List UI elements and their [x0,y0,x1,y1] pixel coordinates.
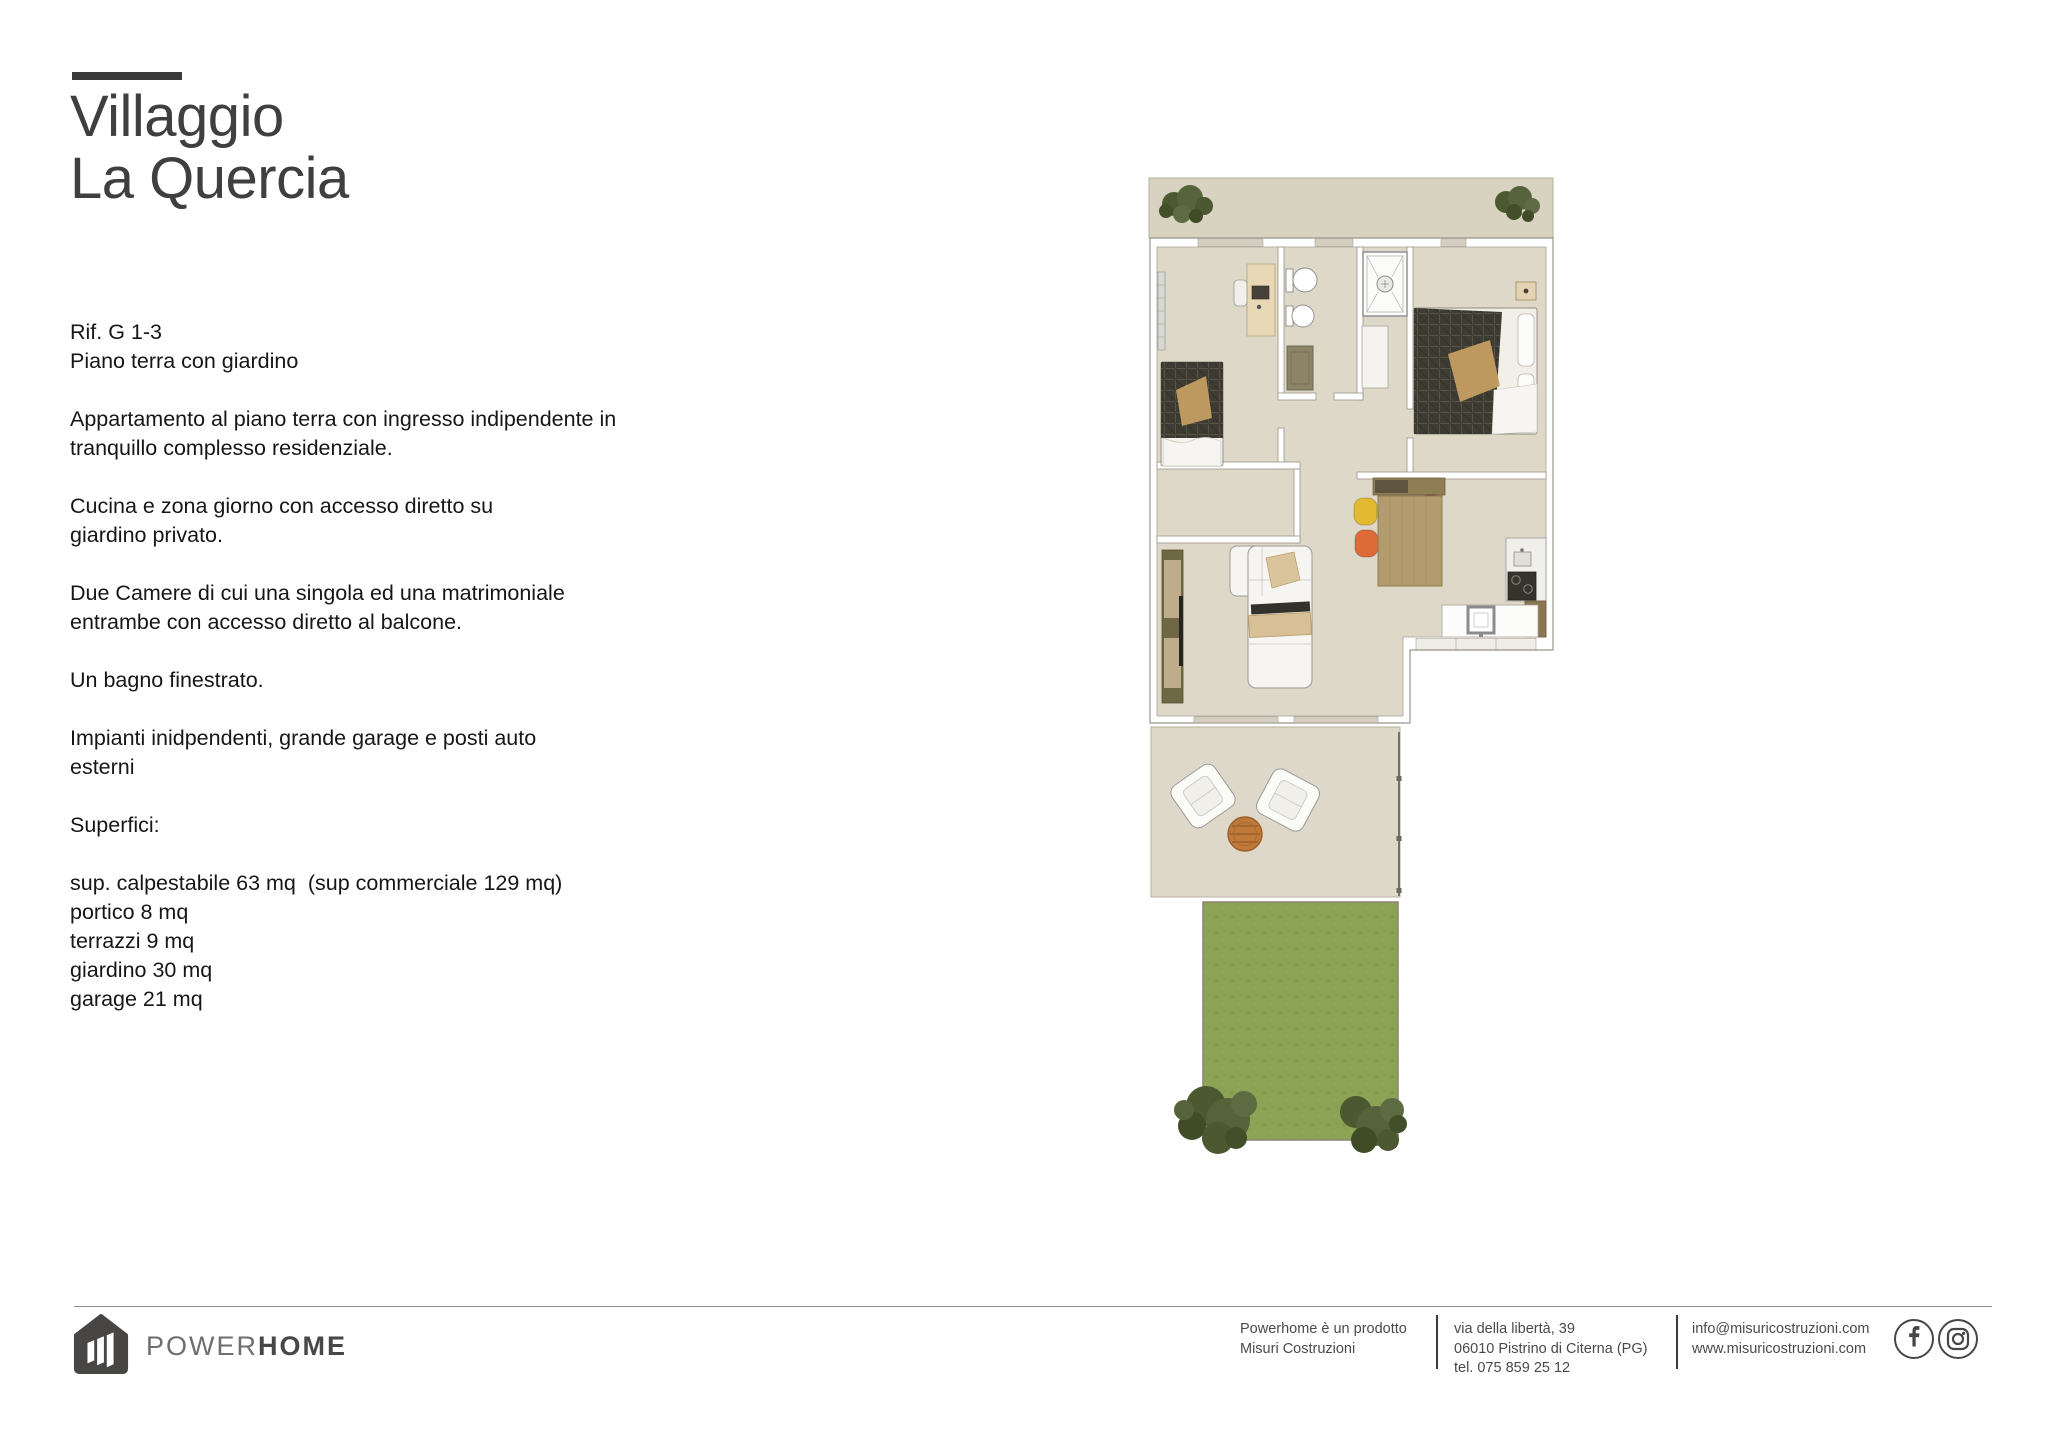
property-description: Rif. G 1-3 Piano terra con giardino Appa… [70,318,690,1043]
porch-mat [1468,607,1494,637]
brand-wordmark: POWERHOME [146,1331,347,1362]
footer-company-line2: Misuri Costruzioni [1240,1340,1407,1360]
superfici-list: sup. calpestabile 63 mq (sup commerciale… [70,869,690,1014]
bidet [1286,305,1314,327]
kitchen-sink [1514,552,1531,566]
radiator [1158,272,1165,350]
brand-power: POWER [146,1331,258,1361]
page-title-line1: Villaggio [70,86,349,148]
desk [1247,264,1275,336]
footer-address-phone: tel. 075 859 25 12 [1454,1359,1647,1379]
ref-and-floor: Rif. G 1-3 Piano terra con giardino [70,318,690,376]
garden-bush-left [1174,1086,1257,1154]
desk-chair [1234,280,1247,306]
paragraph-garage: Impianti inidpendenti, grande garage e p… [70,724,690,782]
dining-chair-yellow [1354,498,1377,525]
footer-website: www.misuricostruzioni.com [1692,1340,1870,1360]
paragraph-bathroom: Un bagno finestrato. [70,666,690,695]
single-bed [1161,362,1223,466]
toilet [1286,268,1317,292]
page-title-line2: La Quercia [70,148,349,210]
brand-home: HOME [258,1331,347,1361]
shower [1363,252,1407,316]
footer-address: via della libertà, 39 06010 Pistrino di … [1454,1320,1647,1379]
footer-contacts: info@misuricostruzioni.com www.misuricos… [1692,1320,1870,1359]
paragraph-intro: Appartamento al piano terra con ingresso… [70,405,690,463]
patio [1151,727,1402,897]
bath-mat [1287,346,1313,390]
double-bed [1414,308,1537,434]
brochure-page: Villaggio La Quercia Rif. G 1-3 Piano te… [0,0,2048,1448]
footer-address-city: 06010 Pistrino di Citerna (PG) [1454,1340,1647,1360]
balcony [1149,178,1553,238]
footer-company-line1: Powerhome è un prodotto [1240,1320,1407,1340]
footer-company: Powerhome è un prodotto Misuri Costruzio… [1240,1320,1407,1359]
stove [1508,572,1536,600]
page-title: Villaggio La Quercia [70,86,349,210]
entrance-porch [1442,605,1538,637]
sideboard [1373,478,1445,495]
paragraph-kitchen: Cucina e zona giorno con accesso diretto… [70,492,690,550]
footer-separator-2 [1676,1315,1678,1369]
footer-divider-line [74,1306,1992,1307]
instagram-icon[interactable] [1938,1319,1978,1359]
patio-table [1228,817,1262,851]
powerhome-logo-icon [72,1313,130,1375]
floor-plan [1148,176,1555,1166]
footer-address-street: via della libertà, 39 [1454,1320,1647,1340]
superfici-label: Superfici: [70,811,690,840]
facebook-icon[interactable] [1894,1319,1934,1359]
footer-email: info@misuricostruzioni.com [1692,1320,1870,1340]
garden [1174,902,1407,1154]
dining-table [1378,496,1442,586]
tv-cabinet [1162,550,1183,703]
title-accent-rule [72,72,182,80]
footer-separator-1 [1436,1315,1438,1369]
dining-chair-orange [1355,530,1378,557]
closet-niche [1362,326,1388,388]
paragraph-bedrooms: Due Camere di cui una singola ed una mat… [70,579,690,637]
